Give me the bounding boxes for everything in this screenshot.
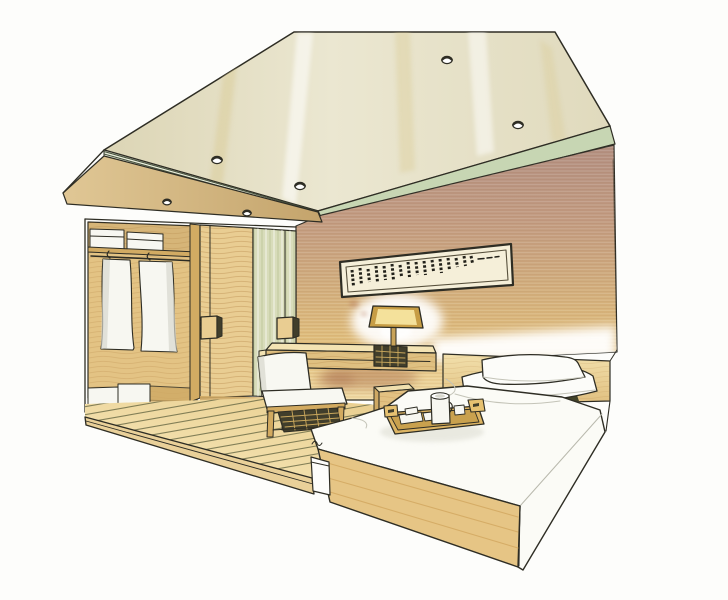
woven-lamp-base <box>374 345 407 367</box>
lamp-stem <box>391 326 396 346</box>
sketch-page <box>0 0 728 600</box>
pillow <box>482 355 585 385</box>
closet-divider <box>190 224 200 402</box>
door-handle <box>277 317 299 339</box>
storage-box <box>90 229 124 249</box>
storage-box <box>127 232 163 251</box>
interior-sketch-canvas <box>0 0 728 600</box>
water-jug <box>431 393 452 424</box>
door-handle <box>201 316 222 339</box>
closet <box>85 219 197 415</box>
bedroom-scene <box>0 0 728 600</box>
chair-leg <box>267 411 274 437</box>
cup <box>454 405 465 415</box>
